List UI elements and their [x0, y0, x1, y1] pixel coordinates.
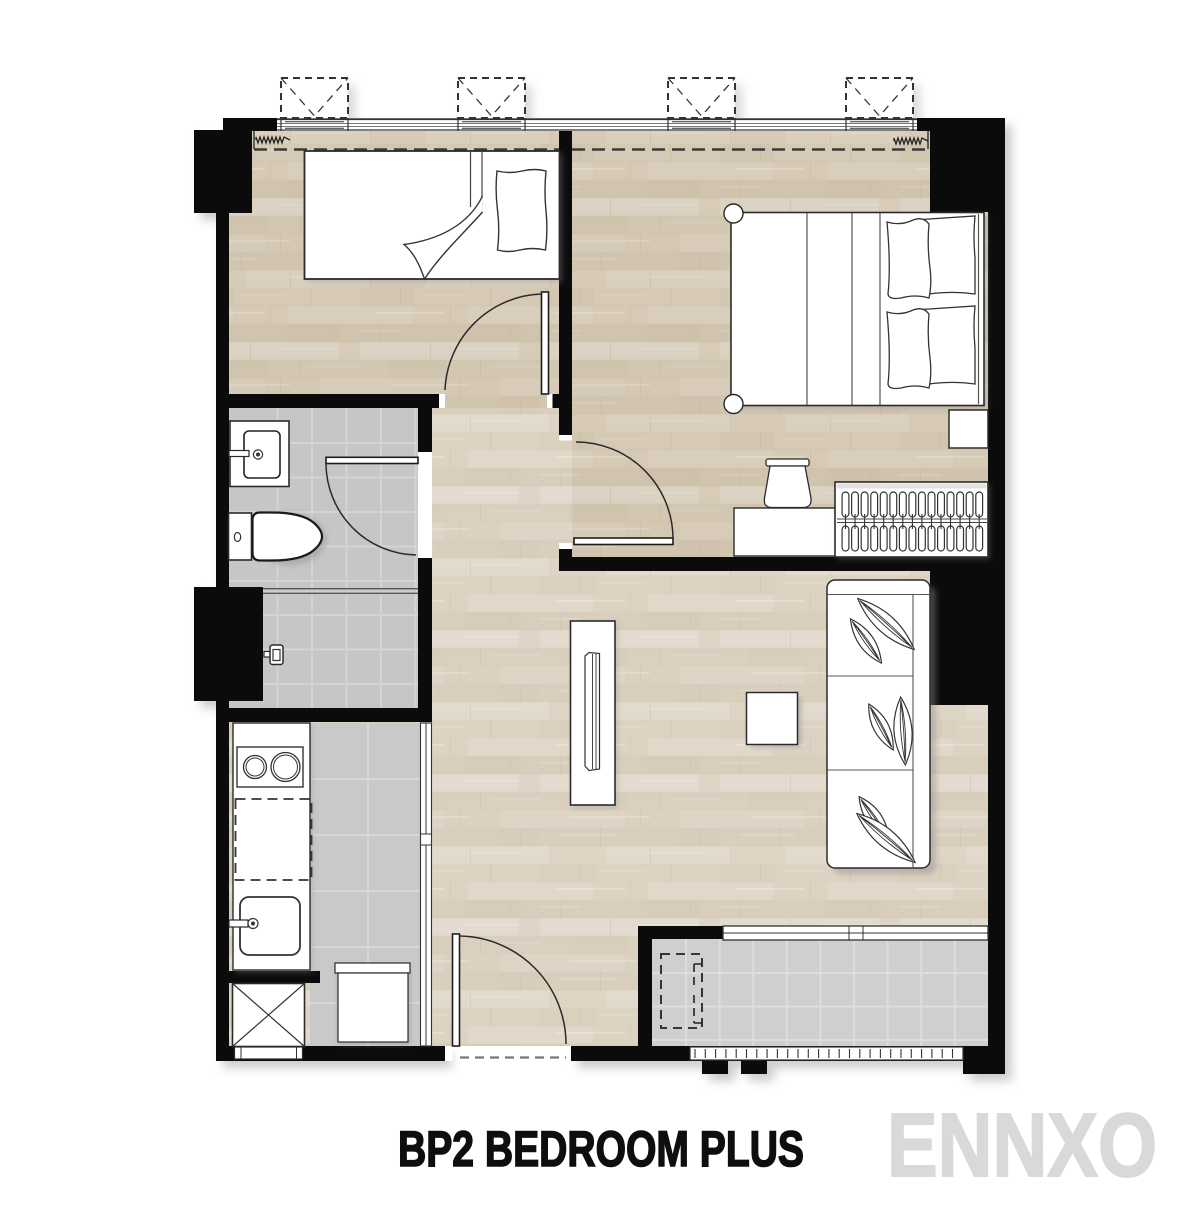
svg-text:ENNXO: ENNXO [887, 1096, 1157, 1196]
svg-text:BP2 BEDROOM PLUS: BP2 BEDROOM PLUS [398, 1121, 804, 1177]
